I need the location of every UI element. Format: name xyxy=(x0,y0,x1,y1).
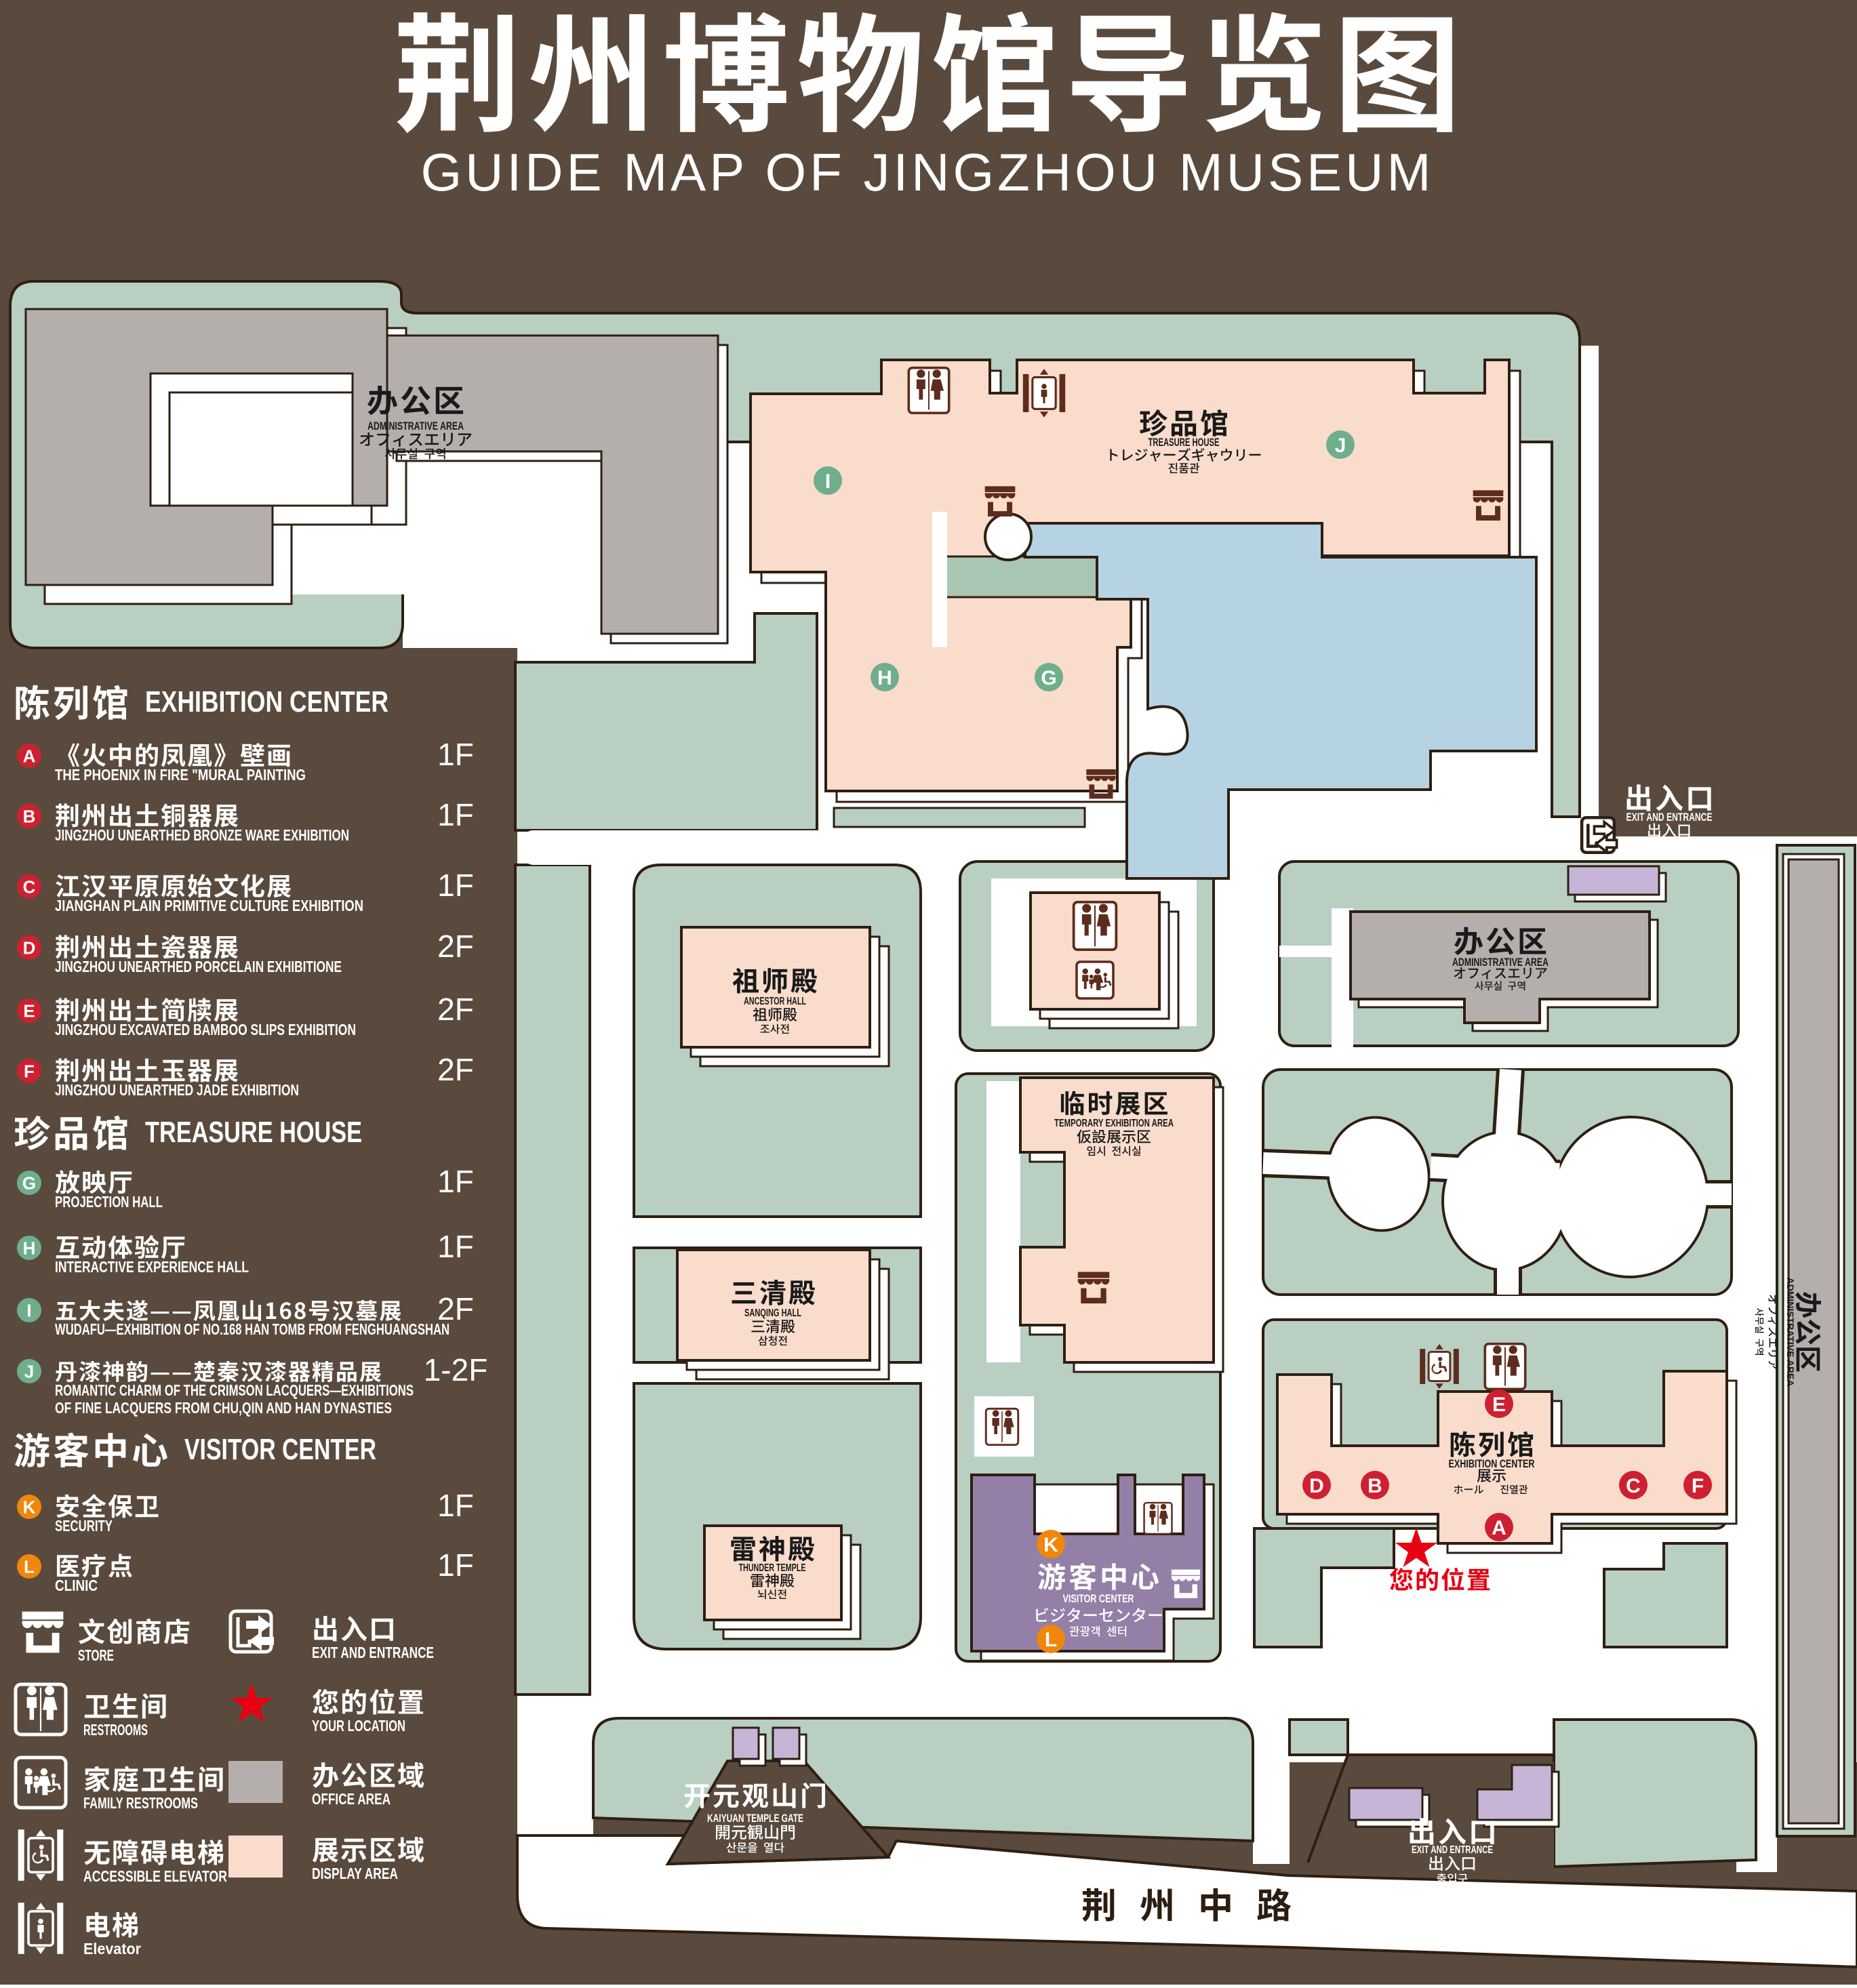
svg-text:H: H xyxy=(23,1238,36,1258)
svg-text:JINGZHOU UNEARTHED PORCELAIN E: JINGZHOU UNEARTHED PORCELAIN EXHIBITIONE xyxy=(55,958,342,975)
svg-text:JINGZHOU EXCAVATED BAMBOO SLIP: JINGZHOU EXCAVATED BAMBOO SLIPS EXHIBITI… xyxy=(55,1021,356,1038)
svg-text:K: K xyxy=(1043,1534,1058,1556)
svg-text:ADMINISTRATIVE AREA: ADMINISTRATIVE AREA xyxy=(1452,956,1549,969)
svg-text:2F: 2F xyxy=(437,992,474,1027)
svg-text:L: L xyxy=(1045,1629,1057,1651)
svg-text:2F: 2F xyxy=(437,1291,474,1326)
svg-text:C: C xyxy=(1626,1475,1641,1497)
svg-text:DISPLAY AREA: DISPLAY AREA xyxy=(312,1865,398,1882)
svg-text:1F: 1F xyxy=(437,1547,474,1583)
svg-text:1F: 1F xyxy=(437,1229,474,1264)
svg-text:OF FINE LACQUERS FROM CHU,QIN: OF FINE LACQUERS FROM CHU,QIN AND HAN DY… xyxy=(55,1399,392,1417)
svg-text:STORE: STORE xyxy=(78,1646,114,1664)
svg-text:TEMPORARY EXHIBITION AREA: TEMPORARY EXHIBITION AREA xyxy=(1054,1118,1174,1129)
svg-text:C: C xyxy=(23,876,36,897)
svg-text:K: K xyxy=(23,1497,36,1517)
svg-text:1F: 1F xyxy=(437,797,474,832)
svg-text:ACCESSIBLE ELEVATOR: ACCESSIBLE ELEVATOR xyxy=(83,1867,227,1885)
svg-text:CLINIC: CLINIC xyxy=(55,1577,98,1594)
svg-text:J: J xyxy=(1335,434,1346,457)
svg-text:JINGZHOU UNEARTHED BRONZE WARE: JINGZHOU UNEARTHED BRONZE WARE EXHIBITIO… xyxy=(55,826,349,844)
svg-text:1F: 1F xyxy=(437,737,474,772)
svg-text:YOUR LOCATION: YOUR LOCATION xyxy=(312,1717,405,1735)
svg-text:EXIT AND ENTRANCE: EXIT AND ENTRANCE xyxy=(1412,1844,1493,1856)
svg-text:D: D xyxy=(1309,1475,1324,1497)
svg-text:J: J xyxy=(24,1361,34,1381)
svg-text:THE PHOENIX IN FIRE "MURAL PAI: THE PHOENIX IN FIRE "MURAL PAINTING xyxy=(55,766,306,784)
svg-text:G: G xyxy=(22,1173,36,1193)
svg-text:1-2F: 1-2F xyxy=(424,1352,488,1387)
svg-text:B: B xyxy=(23,806,36,826)
svg-text:1F: 1F xyxy=(437,868,474,903)
svg-text:F: F xyxy=(24,1061,35,1081)
svg-text:H: H xyxy=(877,667,892,689)
svg-text:VISITOR CENTER: VISITOR CENTER xyxy=(184,1433,376,1466)
svg-text:ROMANTIC CHARM OF THE CRIMSON: ROMANTIC CHARM OF THE CRIMSON LACQUERS—E… xyxy=(55,1381,414,1399)
svg-text:I: I xyxy=(26,1300,31,1320)
svg-text:E: E xyxy=(23,1000,35,1021)
svg-text:PROJECTION HALL: PROJECTION HALL xyxy=(55,1193,163,1211)
svg-text:EXHIBITION CENTER: EXHIBITION CENTER xyxy=(1449,1457,1535,1470)
svg-text:RESTROOMS: RESTROOMS xyxy=(83,1721,148,1739)
svg-text:F: F xyxy=(1692,1475,1704,1497)
svg-text:2F: 2F xyxy=(437,1052,474,1087)
svg-text:I: I xyxy=(825,470,831,493)
svg-text:2F: 2F xyxy=(437,929,474,964)
svg-text:L: L xyxy=(24,1556,35,1577)
svg-text:JINGZHOU UNEARTHED JADE EXHIBI: JINGZHOU UNEARTHED JADE EXHIBITION xyxy=(55,1081,299,1099)
svg-text:TREASURE HOUSE: TREASURE HOUSE xyxy=(145,1116,362,1149)
svg-text:1F: 1F xyxy=(437,1164,474,1199)
svg-text:GUIDE MAP OF JINGZHOU MUSEUM: GUIDE MAP OF JINGZHOU MUSEUM xyxy=(421,142,1435,202)
svg-text:VISITOR CENTER: VISITOR CENTER xyxy=(1063,1592,1134,1605)
svg-text:INTERACTIVE EXPERIENCE HALL: INTERACTIVE EXPERIENCE HALL xyxy=(55,1258,249,1276)
svg-text:G: G xyxy=(1041,667,1056,689)
svg-text:Elevator: Elevator xyxy=(83,1940,141,1957)
svg-text:A: A xyxy=(1492,1517,1506,1539)
svg-text:ADMINISTRATIVE AREA: ADMINISTRATIVE AREA xyxy=(1785,1278,1796,1387)
svg-text:EXIT AND ENTRANCE: EXIT AND ENTRANCE xyxy=(1626,811,1713,824)
svg-text:TREASURE HOUSE: TREASURE HOUSE xyxy=(1149,436,1220,449)
svg-text:THUNDER TEMPLE: THUNDER TEMPLE xyxy=(739,1562,806,1574)
svg-text:SANQING HALL: SANQING HALL xyxy=(744,1307,801,1319)
svg-text:B: B xyxy=(1367,1475,1382,1497)
svg-text:KAIYUAN TEMPLE GATE: KAIYUAN TEMPLE GATE xyxy=(707,1812,803,1825)
svg-text:1F: 1F xyxy=(437,1488,474,1523)
svg-text:ADMINISTRATIVE AREA: ADMINISTRATIVE AREA xyxy=(367,420,464,432)
svg-text:A: A xyxy=(23,746,36,766)
svg-text:EXHIBITION CENTER: EXHIBITION CENTER xyxy=(145,685,388,718)
svg-text:JIANGHAN PLAIN PRIMITIVE CULTU: JIANGHAN PLAIN PRIMITIVE CULTURE EXHIBIT… xyxy=(55,897,363,914)
svg-text:E: E xyxy=(1492,1394,1506,1416)
svg-text:EXIT AND ENTRANCE: EXIT AND ENTRANCE xyxy=(312,1644,434,1661)
svg-text:FAMILY RESTROOMS: FAMILY RESTROOMS xyxy=(83,1794,198,1812)
svg-text:OFFICE AREA: OFFICE AREA xyxy=(312,1790,391,1808)
svg-text:D: D xyxy=(23,937,36,958)
svg-text:SECURITY: SECURITY xyxy=(55,1517,113,1535)
svg-text:WUDAFU—EXHIBITION OF NO.168 HA: WUDAFU—EXHIBITION OF NO.168 HAN TOMB FRO… xyxy=(55,1320,450,1338)
svg-text:ANCESTOR HALL: ANCESTOR HALL xyxy=(744,996,806,1007)
